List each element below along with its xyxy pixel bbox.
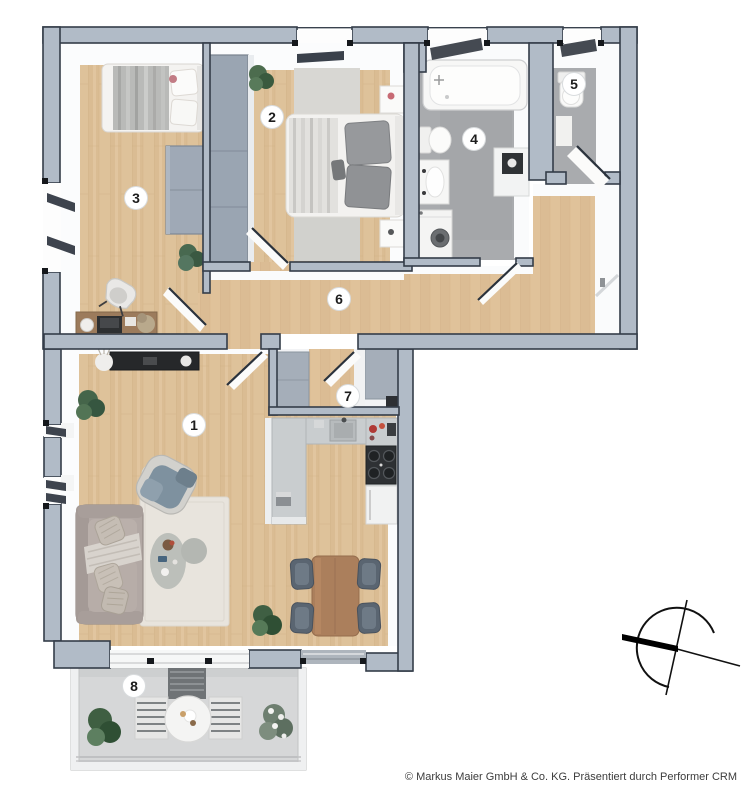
svg-text:1: 1 (190, 417, 198, 433)
svg-text:6: 6 (335, 291, 343, 307)
svg-text:2: 2 (268, 109, 276, 125)
svg-text:5: 5 (570, 76, 578, 92)
svg-text:7: 7 (344, 388, 352, 404)
svg-text:3: 3 (132, 190, 140, 206)
svg-text:4: 4 (470, 131, 478, 147)
svg-text:8: 8 (130, 678, 138, 694)
svg-text:© Markus Maier GmbH & Co. KG.: © Markus Maier GmbH & Co. KG. Präsentier… (405, 771, 737, 783)
